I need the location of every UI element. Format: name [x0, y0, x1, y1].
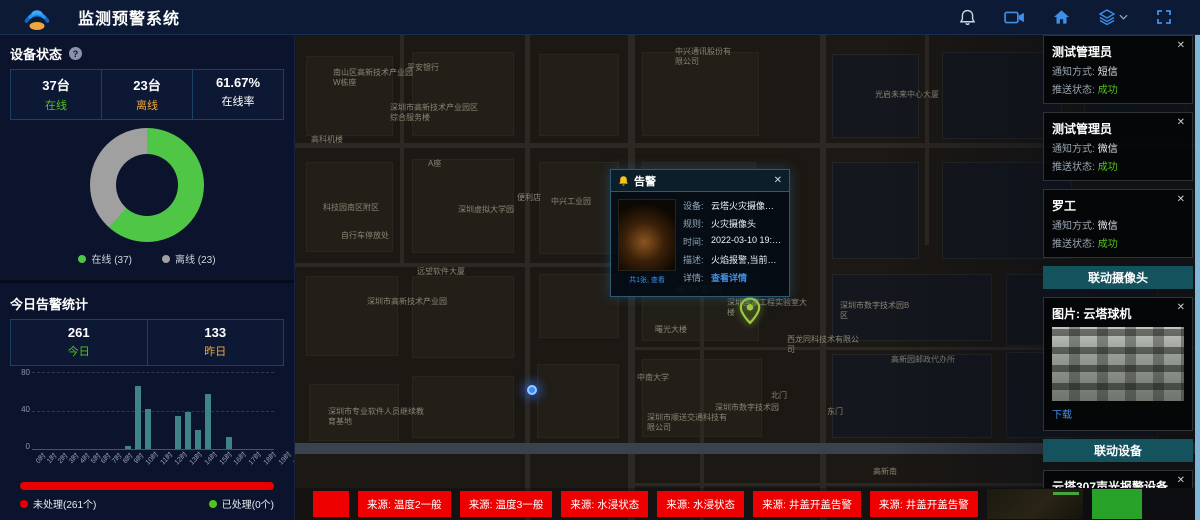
unprocessed-item: 未处理(261个)	[20, 496, 96, 511]
alert-popup-header: 告警 ✕	[611, 170, 789, 192]
legend-dot-icon	[78, 255, 86, 263]
chevron-down-icon	[1119, 14, 1128, 20]
online-rate: 61.67%	[195, 75, 281, 90]
popup-field-label: 规则:	[683, 217, 711, 230]
card-row: 推送状态:成功	[1052, 81, 1184, 96]
map-building	[540, 275, 618, 337]
card-row-value: 成功	[1098, 162, 1118, 173]
bar-slot	[123, 372, 133, 449]
map-place-label: 西龙同科技术有限公司	[787, 335, 859, 356]
map-place-label: A座	[428, 159, 441, 169]
today-alerts-section: 今日告警统计 261 今日 133 昨日 80 40 0 0时1时2时3时4时5…	[0, 285, 294, 520]
device-donut-ring	[90, 128, 204, 242]
legend-item: 在线 (37)	[78, 251, 132, 266]
linked-device-header: 联动设备	[1043, 439, 1193, 462]
card-title: 云塔307声光报警设备	[1052, 478, 1184, 488]
unprocessed-progress-bar	[20, 482, 274, 490]
map-place-label: 便利店	[517, 193, 541, 203]
alert-thumbnail-caption[interactable]: 共1张, 查看	[618, 275, 676, 285]
notification-card: 罗工✕通知方式:微信推送状态:成功	[1043, 189, 1193, 258]
popup-field-value: 2022-03-10 19:13:07	[711, 235, 782, 248]
green-dot-icon	[209, 500, 217, 508]
hour-bars	[32, 372, 274, 449]
camera-photo[interactable]	[1052, 327, 1184, 401]
map-place-label: 深圳市数字技术园B区	[840, 301, 912, 322]
yesterday-count: 133	[150, 325, 282, 340]
popup-field-value: 火灾摄像头	[711, 217, 756, 230]
notification-card: 测试管理员✕通知方式:短信推送状态:成功	[1043, 35, 1193, 104]
alert-popup-title: 告警	[634, 173, 656, 189]
left-panel: 设备状态 ? 37台 在线 23台 离线 61.67% 在线率 在线 (37)离…	[0, 35, 295, 520]
bar-slot	[234, 372, 244, 449]
close-icon[interactable]: ✕	[1177, 475, 1185, 486]
online-rate-cell: 61.67% 在线率	[192, 70, 283, 119]
bar-slot	[62, 372, 72, 449]
alert-camera-thumbnail[interactable]	[987, 489, 1083, 519]
bar	[125, 446, 131, 449]
popup-field-row: 设备:云塔火灾摄像头202	[683, 199, 782, 212]
card-row-label: 通知方式:	[1052, 144, 1095, 155]
close-icon[interactable]: ✕	[1177, 302, 1185, 313]
bar-slot	[72, 372, 82, 449]
card-row: 通知方式:短信	[1052, 63, 1184, 78]
map-place-label: 北门	[771, 391, 787, 401]
map-place-label: 中南大学	[637, 373, 669, 383]
bar-slot	[244, 372, 254, 449]
popup-field-label: 详情:	[683, 271, 711, 284]
alert-location-pin-icon[interactable]	[739, 297, 761, 330]
popup-field-row: 详情:查看详情	[683, 271, 782, 284]
map-road	[925, 35, 929, 245]
bar-slot	[42, 372, 52, 449]
map-place-label: 光启未来中心大厦	[875, 90, 965, 100]
card-row-label: 通知方式:	[1052, 221, 1095, 232]
yesterday-label: 昨日	[150, 343, 282, 359]
bar-slot	[32, 372, 42, 449]
alert-bell-icon	[618, 175, 629, 187]
header-icon-group	[959, 8, 1172, 26]
bar-slot	[193, 372, 203, 449]
today-alerts-title: 今日告警统计	[10, 289, 284, 319]
card-row-label: 推送状态:	[1052, 162, 1095, 173]
today-count: 261	[13, 325, 145, 340]
close-icon[interactable]: ✕	[1177, 117, 1185, 128]
bar-slot	[183, 372, 193, 449]
alert-source-box[interactable]: 来源: 水浸状态	[657, 491, 744, 517]
bar	[205, 394, 211, 449]
device-status-title: 设备状态 ?	[10, 39, 284, 69]
help-icon[interactable]: ?	[69, 47, 82, 60]
legend-label: 离线 (23)	[175, 251, 216, 266]
card-row-value: 微信	[1098, 144, 1118, 155]
map-place-label: 深圳市高新技术产业园区综合服务楼	[390, 103, 484, 124]
online-count: 37台	[13, 75, 99, 94]
card-title: 测试管理员	[1052, 43, 1184, 60]
popup-field-value: 火焰报警,当前触发值为...	[711, 253, 782, 266]
device-status-section: 设备状态 ? 37台 在线 23台 离线 61.67% 在线率 在线 (37)离…	[0, 35, 294, 274]
card-row-label: 推送状态:	[1052, 85, 1095, 96]
camera-card-title: 图片: 云塔球机	[1052, 305, 1184, 322]
bar-slot	[213, 372, 223, 449]
bar-slot	[103, 372, 113, 449]
offline-label: 离线	[104, 97, 190, 113]
map-place-label: 深圳市顺送交通科技有限公司	[647, 413, 733, 434]
alert-source-box[interactable]: 来源: 井盖开盖告警	[870, 491, 978, 517]
card-row-value: 短信	[1098, 67, 1118, 78]
alert-source-box[interactable]: 来源: 温度3一般	[460, 491, 553, 517]
popup-field-label: 描述:	[683, 253, 711, 266]
map-building	[833, 163, 918, 258]
alert-green-thumbnail[interactable]	[1092, 489, 1142, 519]
alert-source-box[interactable]: 来源: 温度2一般	[358, 491, 451, 517]
bar	[145, 409, 151, 449]
card-title: 测试管理员	[1052, 120, 1184, 137]
right-scrollbar[interactable]	[1195, 35, 1200, 520]
map-building	[540, 163, 618, 253]
hour-xlabels: 0时1时2时3时4时5时6时7时8时9时10时11时12时13时14时15时16…	[32, 452, 274, 476]
unprocessed-label: 未处理(261个)	[33, 496, 96, 511]
map-place-label: 平安银行	[407, 63, 439, 73]
hourly-alert-bar-chart: 80 40 0 0时1时2时3时4时5时6时7时8时9时10时11时12时13时…	[16, 368, 278, 478]
popup-field-row: 时间:2022-03-10 19:13:07	[683, 235, 782, 248]
linked-device-card: 云塔307声光报警设备✕设备编码:ffffff100001ab6c调用服务:报警…	[1043, 470, 1193, 488]
legend-item: 离线 (23)	[162, 251, 216, 266]
home-icon[interactable]	[1053, 9, 1070, 25]
map-building	[307, 277, 397, 355]
card-row-label: 通知方式:	[1052, 67, 1095, 78]
popup-field-label: 设备:	[683, 199, 711, 212]
popup-field-value: 云塔火灾摄像头202	[711, 199, 782, 212]
card-row-value: 成功	[1098, 85, 1118, 96]
red-dot-icon	[20, 500, 28, 508]
alert-source-box[interactable]: 来源: 井盖开盖告警	[753, 491, 861, 517]
processed-item: 已处理(0个)	[209, 496, 274, 511]
map-place-label: 深圳市专业软件人员继续教育基地	[328, 407, 424, 428]
linked-camera-header: 联动摄像头	[1043, 266, 1193, 289]
map-place-label: 科技园南区附区	[323, 203, 379, 213]
bottom-alerts: 来源: 温度2一般来源: 温度3一般来源: 水浸状态来源: 水浸状态来源: 井盖…	[358, 491, 978, 517]
online-rate-label: 在线率	[195, 93, 281, 109]
y-tick-80: 80	[18, 368, 30, 377]
bar-slot	[92, 372, 102, 449]
card-row-label: 推送状态:	[1052, 239, 1095, 250]
map-place-label: 高新南	[873, 467, 897, 477]
alert-box-fragment[interactable]	[313, 491, 349, 517]
card-row: 推送状态:成功	[1052, 235, 1184, 250]
bar	[195, 430, 201, 449]
right-panel: 测试管理员✕通知方式:短信推送状态:成功测试管理员✕通知方式:微信推送状态:成功…	[1043, 35, 1193, 488]
map-building	[413, 277, 513, 357]
legend-label: 在线 (37)	[91, 251, 132, 266]
popup-field-label: 时间:	[683, 235, 711, 248]
map-place-label: 东门	[827, 407, 843, 417]
y-tick-40: 40	[18, 405, 30, 414]
today-count-cell: 261 今日	[11, 320, 147, 365]
map-place-label: 高科机楼	[311, 135, 343, 145]
processed-label: 已处理(0个)	[222, 496, 274, 511]
camera-snapshot-card: 图片: 云塔球机 ✕ 下载	[1043, 297, 1193, 431]
bar	[135, 386, 141, 449]
donut-legend: 在线 (37)离线 (23)	[10, 244, 284, 268]
alert-thumbnail-col: 共1张, 查看	[618, 199, 676, 289]
bar-slot	[173, 372, 183, 449]
app-logo-icon	[22, 2, 52, 32]
card-row: 通知方式:微信	[1052, 140, 1184, 155]
map-place-label: 深圳虚拟大学园	[458, 205, 514, 215]
bottom-alert-bar: 来源: 温度2一般来源: 温度3一般来源: 水浸状态来源: 水浸状态来源: 井盖…	[295, 488, 1200, 520]
popup-field-row: 规则:火灾摄像头	[683, 217, 782, 230]
offline-count-cell: 23台 离线	[101, 70, 192, 119]
map-place-label: 深圳市数字技术园	[715, 403, 807, 413]
map-road	[295, 263, 635, 267]
bar-slot	[52, 372, 62, 449]
card-title: 罗工	[1052, 197, 1184, 214]
notification-card: 测试管理员✕通知方式:微信推送状态:成功	[1043, 112, 1193, 181]
bar-slot	[153, 372, 163, 449]
card-row-value: 微信	[1098, 221, 1118, 232]
map-place-label: 中兴通讯股份有限公司	[675, 47, 737, 68]
bar-slot	[203, 372, 213, 449]
alert-snapshot-image[interactable]	[618, 199, 676, 271]
close-icon[interactable]: ✕	[1177, 40, 1185, 51]
map-building	[833, 355, 991, 437]
map-building	[540, 55, 618, 135]
card-row: 通知方式:微信	[1052, 217, 1184, 232]
alert-popup: 告警 ✕ 共1张, 查看 设备:云塔火灾摄像头202规则:火灾摄像头时间:202…	[610, 169, 790, 297]
bar-slot	[163, 372, 173, 449]
alert-source-box[interactable]: 来源: 水浸状态	[561, 491, 648, 517]
device-status-grid: 37台 在线 23台 离线 61.67% 在线率	[10, 69, 284, 120]
bar	[175, 416, 181, 449]
card-row-value: 成功	[1098, 239, 1118, 250]
alert-popup-body: 共1张, 查看 设备:云塔火灾摄像头202规则:火灾摄像头时间:2022-03-…	[611, 192, 789, 296]
bar-slot	[113, 372, 123, 449]
bar-slot	[223, 372, 233, 449]
popup-field-row: 描述:火焰报警,当前触发值为...	[683, 253, 782, 266]
fullscreen-icon[interactable]	[1156, 9, 1172, 25]
device-list: 云塔307声光报警设备✕设备编码:ffffff100001ab6c调用服务:报警…	[1043, 470, 1193, 488]
bar-slot	[143, 372, 153, 449]
offline-count: 23台	[104, 75, 190, 94]
device-status-title-text: 设备状态	[10, 44, 62, 63]
download-link[interactable]: 下载	[1052, 406, 1072, 421]
notification-list: 测试管理员✕通知方式:短信推送状态:成功测试管理员✕通知方式:微信推送状态:成功…	[1043, 35, 1193, 258]
map-building	[413, 377, 513, 437]
map-place-label: 远望软件大厦	[417, 267, 465, 277]
y-tick-0: 0	[18, 442, 30, 451]
map-building	[538, 365, 618, 437]
map-place-label: 曙光大楼	[655, 325, 687, 335]
online-label: 在线	[13, 97, 99, 113]
today-label: 今日	[13, 343, 145, 359]
map-place-label: 高新园邮政代办所	[891, 355, 983, 365]
online-count-cell: 37台 在线	[11, 70, 101, 119]
bar-slot	[82, 372, 92, 449]
popup-fields: 设备:云塔火灾摄像头202规则:火灾摄像头时间:2022-03-10 19:13…	[683, 199, 782, 289]
header: 监测预警系统	[0, 0, 1200, 35]
device-location-dot[interactable]	[527, 385, 537, 395]
close-icon[interactable]: ✕	[1177, 194, 1185, 205]
today-alerts-grid: 261 今日 133 昨日	[10, 319, 284, 366]
map-place-label: 深圳市高新技术产业园	[367, 297, 449, 307]
bar-slot	[264, 372, 274, 449]
bar	[226, 437, 232, 450]
close-icon[interactable]: ✕	[774, 175, 782, 186]
bar-slot	[254, 372, 264, 449]
layers-icon[interactable]	[1098, 8, 1128, 26]
bar-slot	[133, 372, 143, 449]
bar-plot-area	[32, 372, 274, 450]
map-place-label: 自行车停放处	[341, 231, 389, 241]
video-camera-icon[interactable]	[1004, 10, 1025, 25]
bar	[185, 412, 191, 449]
map-road	[700, 260, 704, 520]
map-place-label: 中兴工业园	[551, 197, 591, 207]
page-title: 监测预警系统	[78, 5, 180, 29]
view-detail-link[interactable]: 查看详情	[711, 271, 747, 284]
card-row: 推送状态:成功	[1052, 158, 1184, 173]
legend-dot-icon	[162, 255, 170, 263]
map-place-label: 南山区高新技术产业园W栋座	[333, 68, 417, 89]
device-donut-wrap	[10, 120, 284, 244]
yesterday-count-cell: 133 昨日	[147, 320, 284, 365]
notification-bell-icon[interactable]	[959, 9, 976, 26]
processed-legend-row: 未处理(261个) 已处理(0个)	[10, 494, 284, 515]
section-divider	[0, 280, 294, 283]
